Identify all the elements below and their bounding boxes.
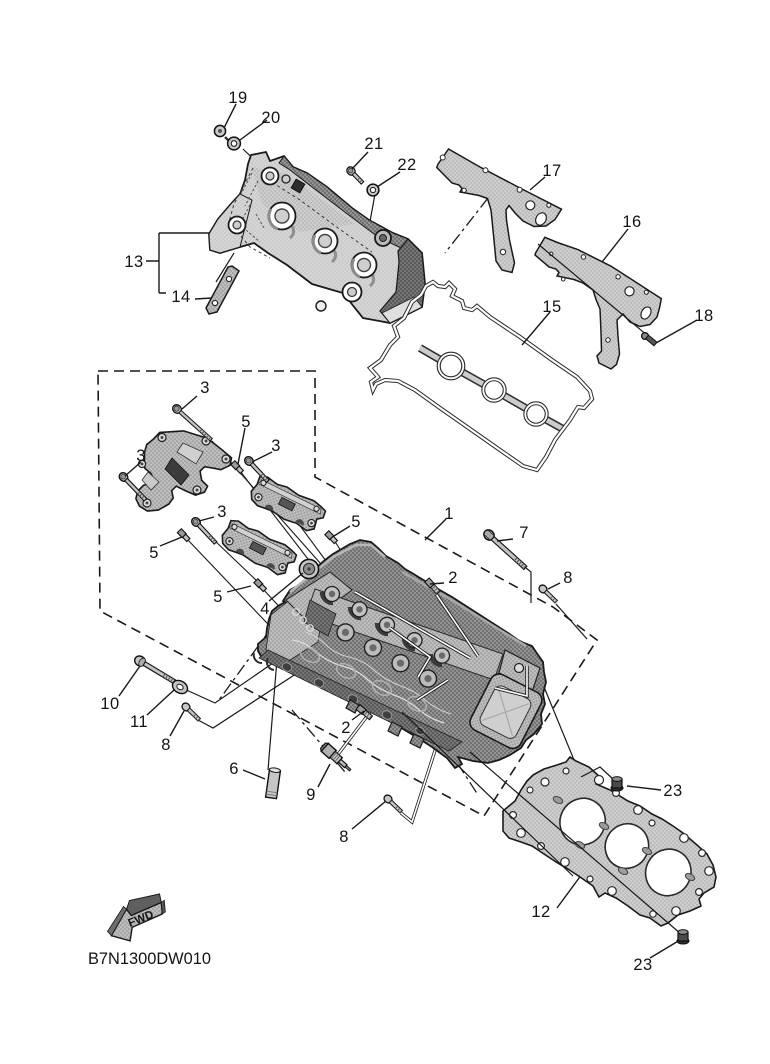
svg-text:9: 9: [306, 786, 316, 804]
svg-text:17: 17: [542, 162, 561, 180]
svg-text:2: 2: [341, 719, 351, 737]
svg-text:1: 1: [444, 505, 454, 523]
svg-text:2: 2: [448, 569, 458, 587]
svg-text:6: 6: [229, 760, 239, 778]
svg-text:3: 3: [271, 437, 281, 455]
svg-text:21: 21: [364, 135, 383, 153]
svg-text:8: 8: [563, 569, 573, 587]
svg-text:16: 16: [622, 213, 641, 231]
svg-text:5: 5: [241, 413, 251, 431]
svg-text:8: 8: [339, 828, 349, 846]
svg-text:13: 13: [124, 253, 143, 271]
svg-text:19: 19: [228, 89, 247, 107]
svg-text:3: 3: [217, 503, 227, 521]
svg-text:15: 15: [542, 298, 561, 316]
svg-text:23: 23: [663, 782, 682, 800]
svg-text:18: 18: [694, 307, 713, 325]
svg-text:22: 22: [397, 156, 416, 174]
svg-text:3: 3: [200, 379, 210, 397]
svg-text:5: 5: [149, 544, 159, 562]
svg-text:5: 5: [213, 588, 223, 606]
svg-text:12: 12: [531, 903, 550, 921]
svg-text:23: 23: [633, 956, 652, 974]
svg-text:10: 10: [100, 695, 119, 713]
svg-text:14: 14: [171, 288, 190, 306]
svg-text:8: 8: [161, 736, 171, 754]
svg-text:4: 4: [260, 600, 270, 618]
svg-text:B7N1300DW010: B7N1300DW010: [88, 950, 211, 968]
svg-text:7: 7: [519, 524, 529, 542]
svg-text:3: 3: [136, 447, 146, 465]
svg-text:20: 20: [261, 109, 280, 127]
svg-text:11: 11: [130, 713, 148, 731]
svg-text:5: 5: [351, 513, 361, 531]
